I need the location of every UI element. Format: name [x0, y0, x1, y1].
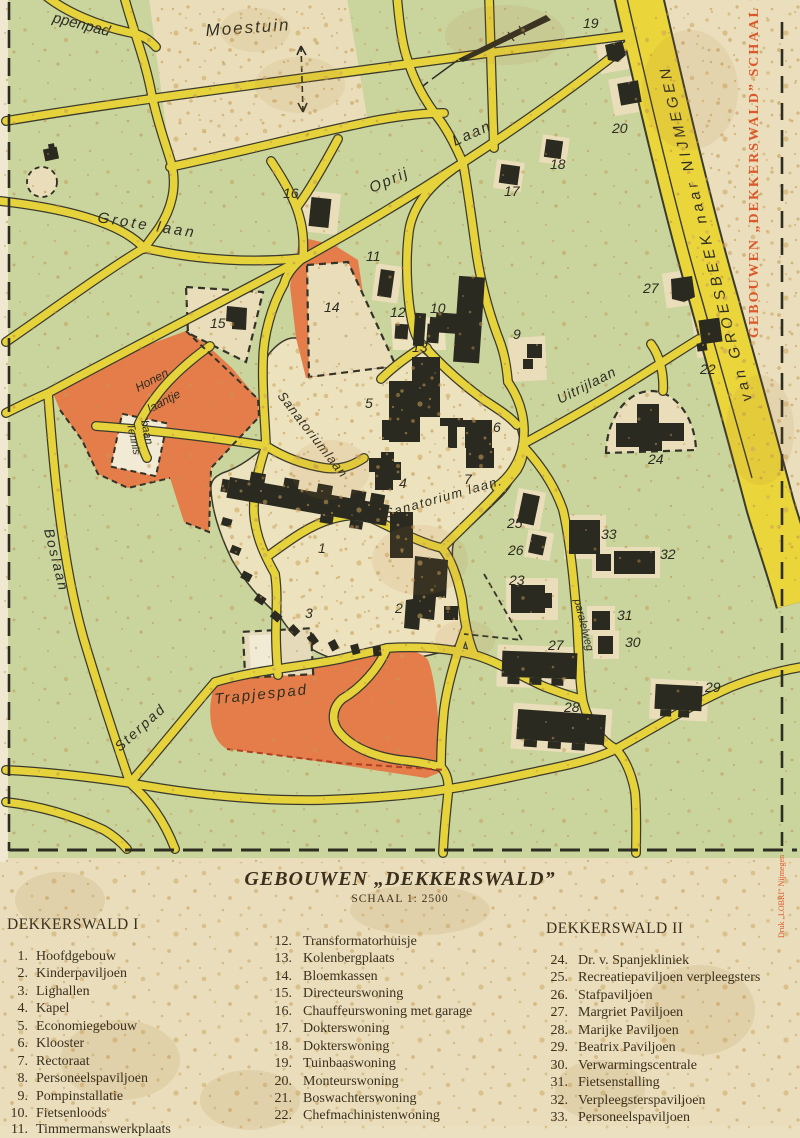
svg-text:GEBOUWEN „DEKKERSWALD” SCHAAL: GEBOUWEN „DEKKERSWALD” SCHAAL 1 — [747, 0, 762, 338]
